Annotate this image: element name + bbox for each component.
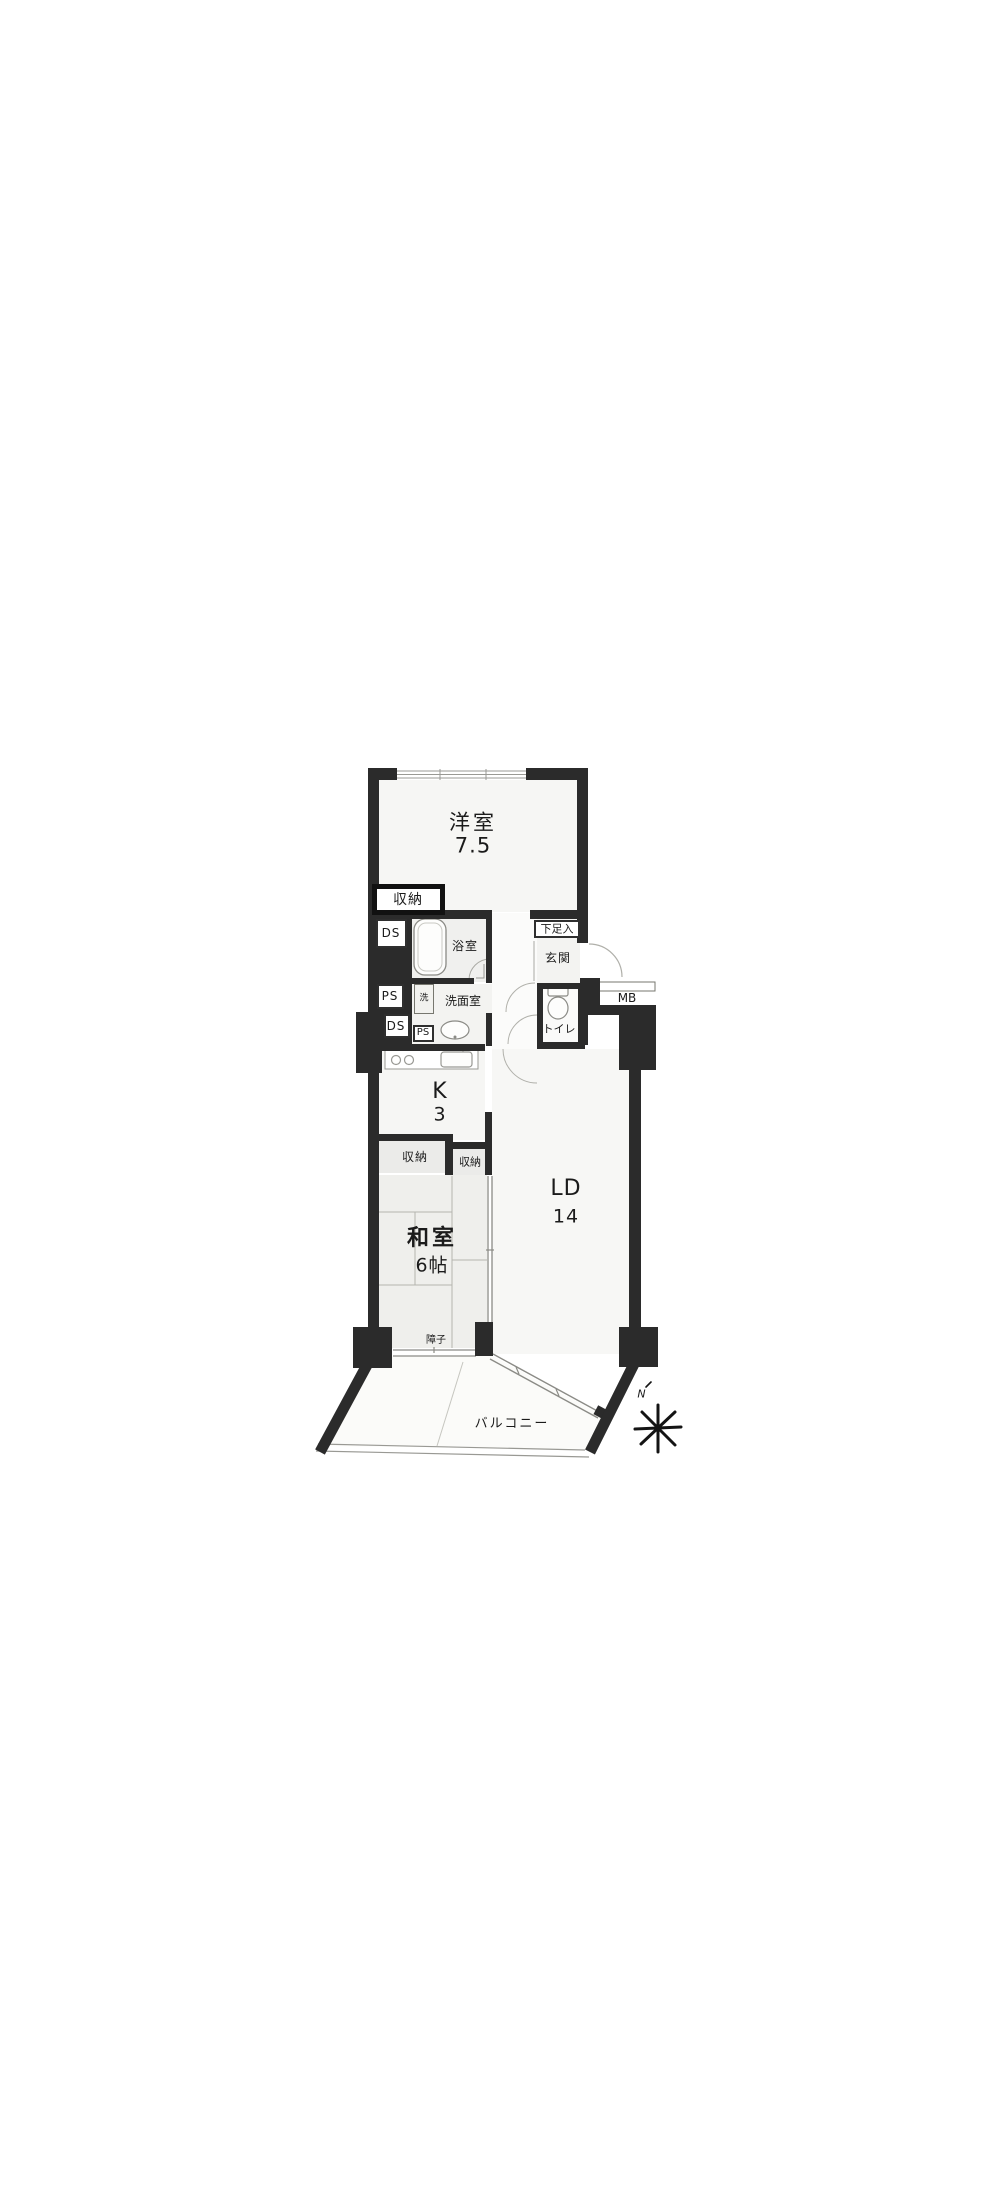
floorplan-page: 洋室 7.5 収納 DS 浴室 下足入 玄関 PS 洗 洗面室 DS PS トイ…	[0, 0, 1002, 2194]
duct-upper-label: DS	[382, 927, 401, 939]
closet-main-label: 収納	[393, 893, 423, 907]
stub-to-pillar	[585, 1005, 621, 1015]
closet-divider-wall	[445, 1134, 453, 1175]
washroom-door-arc	[506, 983, 535, 1012]
western-room-south-wall-right	[530, 910, 580, 919]
closet-right-label: 収納	[459, 1157, 481, 1168]
pipe-upper-label: PS	[382, 990, 399, 1002]
outer-wall-right-lower	[629, 1070, 641, 1332]
kitchen-size: 3	[433, 1106, 446, 1125]
kitchen-ld-wall	[485, 1112, 492, 1175]
balcony-wall-right	[590, 1364, 634, 1452]
ld-door-arc	[503, 1049, 537, 1083]
shoji-label: 障子	[426, 1336, 446, 1346]
kitchen-north-wall	[379, 1044, 485, 1051]
western-room-label: 洋室	[449, 813, 497, 834]
hall-west-wall-upper	[486, 913, 492, 983]
pillar-bottom-left	[353, 1327, 392, 1368]
kitchen-label: K	[432, 1081, 447, 1103]
western-room-size: 7.5	[455, 836, 491, 857]
duct-lower-label: DS	[387, 1020, 406, 1032]
living-dining-size: 14	[553, 1208, 579, 1227]
plan-linework	[0, 0, 1002, 2194]
bath-label: 浴室	[452, 940, 478, 952]
closet-right-north-wall	[452, 1142, 485, 1149]
kitchen-sink	[441, 1052, 472, 1067]
pillar-bottom-right	[619, 1327, 658, 1367]
hall-west-wall-lower	[486, 1013, 492, 1046]
closet-left-label: 収納	[402, 1151, 428, 1163]
japanese-room-label: 和室	[407, 1228, 457, 1250]
entrance-label: 玄関	[545, 952, 571, 964]
shoe-cabinet-label: 下足入	[541, 924, 574, 935]
closet-left-north-wall	[379, 1134, 452, 1141]
compass-north-label: N	[637, 1389, 646, 1400]
meter-box-strip	[598, 982, 655, 991]
meter-box-label: MB	[618, 992, 637, 1004]
meter-box-pillar	[619, 1005, 656, 1070]
living-dining-label: LD	[550, 1178, 581, 1200]
pipe-lower-label: PS	[417, 1028, 429, 1038]
laundry-label: 洗	[419, 995, 428, 1004]
balcony-label: バルコニー	[475, 1418, 550, 1431]
japanese-room-size: 6帖	[415, 1257, 448, 1276]
toilet-east-wall	[578, 983, 588, 1045]
washroom-label: 洗面室	[445, 995, 481, 1007]
toilet-door-arc	[508, 1015, 537, 1044]
toilet-label: トイレ	[543, 1024, 576, 1035]
toilet-bowl	[548, 997, 568, 1019]
entry-door-arc	[589, 944, 622, 977]
pillar-mid-bottom	[475, 1322, 493, 1356]
floorplan: 洋室 7.5 収納 DS 浴室 下足入 玄関 PS 洗 洗面室 DS PS トイ…	[0, 0, 1002, 2194]
toilet-west-wall	[537, 983, 543, 1045]
